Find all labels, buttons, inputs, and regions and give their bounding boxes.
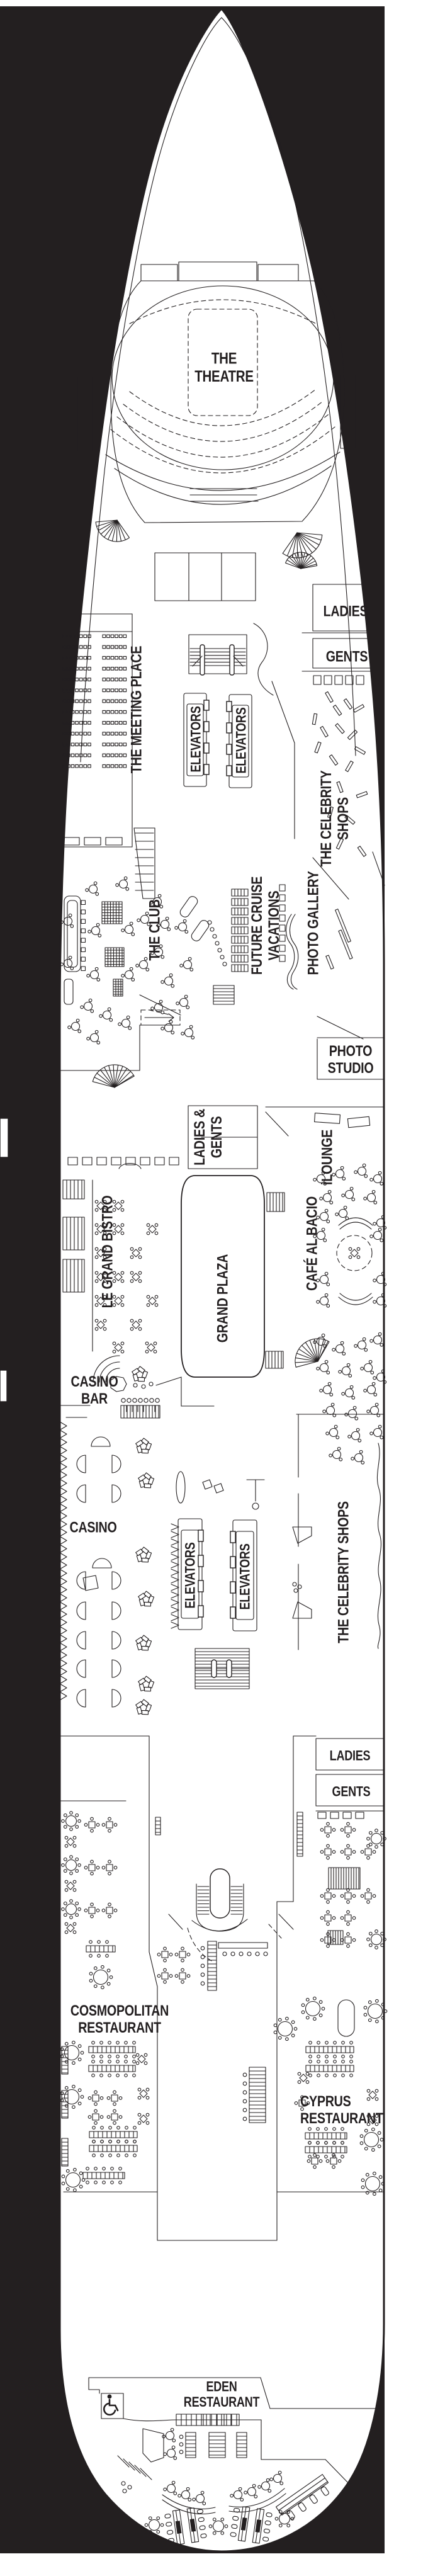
label-photo-studio: PHOTOSTUDIO	[328, 1042, 374, 1076]
label-celebrity-shops-mid: THE CELEBRITY SHOPS	[335, 1501, 352, 1643]
label-ilounge: iLOUNGE	[318, 1130, 335, 1185]
label-elevators-mid-right: ELEVATORS	[238, 1543, 253, 1609]
label-elevators-fwd-right: ELEVATORS	[234, 707, 249, 773]
label-ladies-aft: LADIES	[330, 1749, 371, 1764]
label-le-grand-bistro: LE GRAND BISTRO	[99, 1195, 116, 1308]
label-cafe-al-bacio: CAFÉ AL BACIO	[303, 1196, 320, 1291]
label-future-cruise-vacations: FUTURE CRUISEVACATIONS	[248, 877, 282, 975]
label-elevators-mid-left: ELEVATORS	[183, 1542, 198, 1608]
label-ladies-forward: LADIES	[324, 603, 368, 620]
label-photo-gallery: PHOTO GALLERY	[305, 871, 322, 975]
label-elevators-fwd-left: ELEVATORS	[189, 706, 204, 772]
label-gents-aft: GENTS	[332, 1784, 371, 1800]
deck-plan-svg: THETHEATRELADIESGENTSTHE MEETING PLACEEL…	[0, 0, 428, 2576]
label-the-club: THE CLUB	[146, 899, 163, 960]
label-ladies-gents-mid: LADIES &GENTS	[191, 1109, 225, 1166]
label-casino: CASINO	[69, 1519, 116, 1536]
label-gents-forward: GENTS	[326, 648, 368, 665]
label-grand-plaza: GRAND PLAZA	[214, 1254, 231, 1342]
deck-plan-page: THETHEATRELADIESGENTSTHE MEETING PLACEEL…	[0, 0, 428, 2576]
label-the-meeting-place: THE MEETING PLACE	[128, 646, 145, 773]
label-cosmopolitan-restaurant: COSMOPOLITANRESTAURANT	[70, 2002, 169, 2036]
